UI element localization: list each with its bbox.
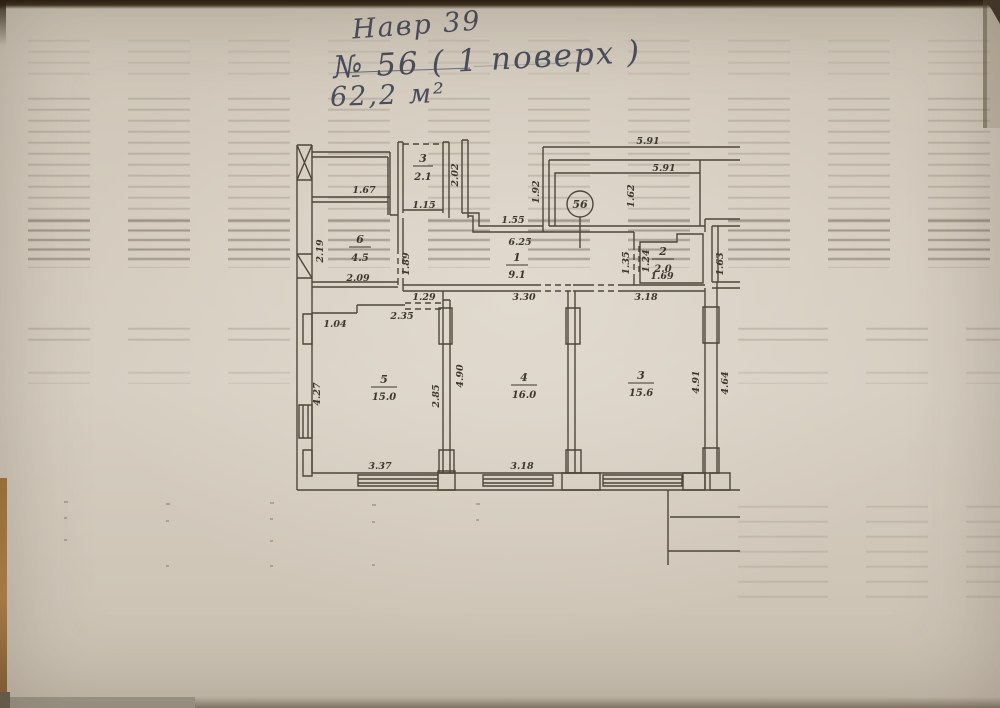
room-area: 15.6	[629, 388, 653, 399]
dim-label: 2.85	[431, 384, 442, 409]
dim-label: 4.64	[720, 371, 731, 394]
dim-label: 1.35	[621, 251, 632, 275]
photocopy-specks	[64, 502, 480, 566]
handwritten-total-area: 62,2 м²	[329, 78, 446, 113]
plan-walls	[297, 140, 740, 565]
room-area: 15.0	[372, 392, 396, 403]
room-area: 2.0	[653, 264, 671, 275]
dim-label: 1.67	[352, 185, 376, 196]
dim-label: 1.62	[626, 184, 637, 208]
unit-number: 56	[572, 198, 588, 211]
room-number: 4	[520, 371, 528, 384]
unit-number-badge: 56	[567, 191, 593, 217]
room-number: 2	[658, 245, 667, 258]
dimension-labels: 5.91 5.91 1.62 1.92 2.02 1.15 1.67 1.55 …	[312, 136, 731, 472]
room-number: 3	[419, 152, 427, 165]
dim-label: 3.18	[634, 292, 658, 303]
dim-label: 1.89	[401, 252, 412, 276]
dim-label: 1.24	[641, 249, 652, 272]
dim-label: 1.92	[531, 180, 542, 204]
dim-label: 3.37	[368, 461, 392, 472]
dim-label: 2.02	[450, 163, 461, 188]
dim-label: 3.30	[512, 292, 536, 303]
dim-label: 5.91	[636, 136, 659, 147]
dim-label: 6.25	[508, 237, 532, 248]
room-area: 16.0	[512, 390, 536, 401]
dim-label: 2.19	[315, 239, 326, 264]
room-area: 9.1	[508, 270, 525, 281]
room-number: 1	[513, 251, 521, 264]
scanned-floor-plan-photo: 56 5.91 5.91 1.62 1.92 2.02 1.15 1.67 1.…	[0, 0, 1000, 708]
floor-plan-drawing: 56 5.91 5.91 1.62 1.92 2.02 1.15 1.67 1.…	[0, 0, 1000, 708]
dim-label: 4.91	[691, 370, 702, 393]
room-area: 2.1	[413, 172, 431, 183]
room-number: 3	[637, 369, 645, 382]
dim-label: 5.91	[652, 163, 675, 174]
dim-label: 3.18	[510, 461, 534, 472]
dim-label: 1.55	[501, 215, 525, 226]
dim-label: 1.15	[412, 200, 436, 211]
dim-label: 1.04	[323, 319, 346, 330]
room-number: 6	[356, 233, 364, 246]
dim-label: 1.63	[715, 252, 726, 276]
dim-label: 4.90	[455, 364, 466, 388]
dim-label: 2.35	[389, 311, 414, 322]
dim-label: 1.29	[412, 292, 436, 303]
dim-label: 4.27	[312, 382, 323, 406]
room-number: 5	[380, 373, 388, 386]
dim-label: 2.09	[345, 273, 370, 284]
room-area: 4.5	[351, 253, 368, 264]
